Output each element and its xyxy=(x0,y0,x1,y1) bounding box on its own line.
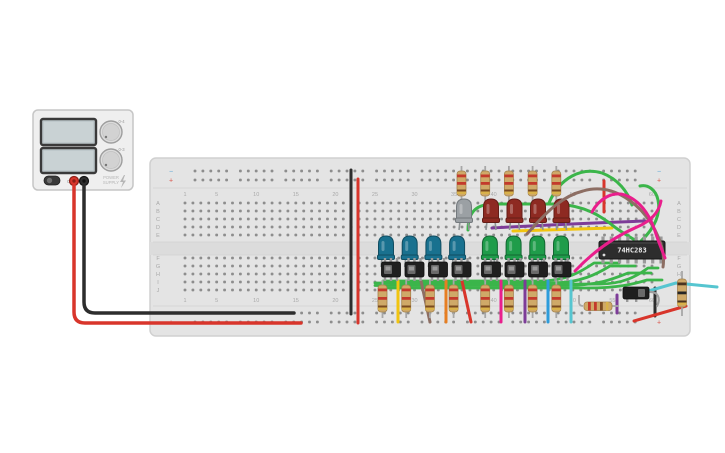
resistor[interactable] xyxy=(481,166,490,201)
psu-display xyxy=(41,148,96,173)
svg-text:20: 20 xyxy=(332,298,338,304)
slide-switch[interactable] xyxy=(552,258,571,281)
svg-text:E: E xyxy=(677,233,681,239)
svg-text:35: 35 xyxy=(451,192,457,198)
slide-switch[interactable] xyxy=(429,258,448,281)
svg-text:H: H xyxy=(677,272,681,278)
resistor[interactable] xyxy=(528,166,537,201)
svg-text:E: E xyxy=(156,233,160,239)
resistor[interactable] xyxy=(552,166,561,201)
resistor[interactable] xyxy=(457,166,466,201)
svg-text:G: G xyxy=(677,264,681,270)
slide-switch[interactable] xyxy=(482,258,501,281)
svg-text:H: H xyxy=(156,272,160,278)
svg-text:40: 40 xyxy=(491,192,497,198)
svg-text:D: D xyxy=(677,225,681,231)
svg-text:SUPPLY: SUPPLY xyxy=(103,180,119,185)
svg-text:0-4: 0-4 xyxy=(119,119,126,124)
circuit-workspace: −−−−++++11551010151520202525303035354040… xyxy=(0,0,725,453)
power-supply[interactable]: 0-40-3OFFPOWERSUPPLY xyxy=(33,110,133,190)
svg-text:C: C xyxy=(677,217,681,223)
svg-text:0-3: 0-3 xyxy=(119,147,126,152)
svg-text:15: 15 xyxy=(293,298,299,304)
svg-text:40: 40 xyxy=(491,298,497,304)
svg-text:−: − xyxy=(169,169,173,176)
svg-text:+: + xyxy=(169,178,173,185)
svg-text:15: 15 xyxy=(293,192,299,198)
slide-switch[interactable] xyxy=(405,258,424,281)
slide-switch[interactable] xyxy=(505,258,524,281)
resistor[interactable] xyxy=(504,166,513,201)
slide-switch[interactable] xyxy=(452,258,471,281)
svg-text:+: + xyxy=(657,178,661,185)
svg-text:A: A xyxy=(156,201,160,207)
svg-text:J: J xyxy=(157,288,160,294)
svg-text:C: C xyxy=(156,217,160,223)
svg-text:25: 25 xyxy=(372,192,378,198)
svg-text:25: 25 xyxy=(372,298,378,304)
svg-text:A: A xyxy=(677,201,681,207)
psu-display xyxy=(41,119,96,145)
svg-text:74HC283: 74HC283 xyxy=(617,247,647,255)
svg-text:B: B xyxy=(156,209,160,215)
circuit-canvas: −−−−++++11551010151520202525303035354040… xyxy=(0,0,725,453)
svg-text:1: 1 xyxy=(183,298,186,304)
svg-text:B: B xyxy=(677,209,681,215)
svg-text:10: 10 xyxy=(253,298,259,304)
svg-text:5: 5 xyxy=(215,298,218,304)
slide-switch[interactable] xyxy=(529,258,548,281)
slide-switch[interactable] xyxy=(382,258,401,281)
svg-text:5: 5 xyxy=(215,192,218,198)
svg-text:−: − xyxy=(657,169,661,176)
svg-text:30: 30 xyxy=(411,192,417,198)
svg-text:+: + xyxy=(657,320,661,327)
svg-text:1: 1 xyxy=(183,192,186,198)
svg-text:D: D xyxy=(156,225,160,231)
svg-text:G: G xyxy=(156,264,160,270)
svg-text:20: 20 xyxy=(332,192,338,198)
svg-text:10: 10 xyxy=(253,192,259,198)
svg-text:30: 30 xyxy=(411,298,417,304)
